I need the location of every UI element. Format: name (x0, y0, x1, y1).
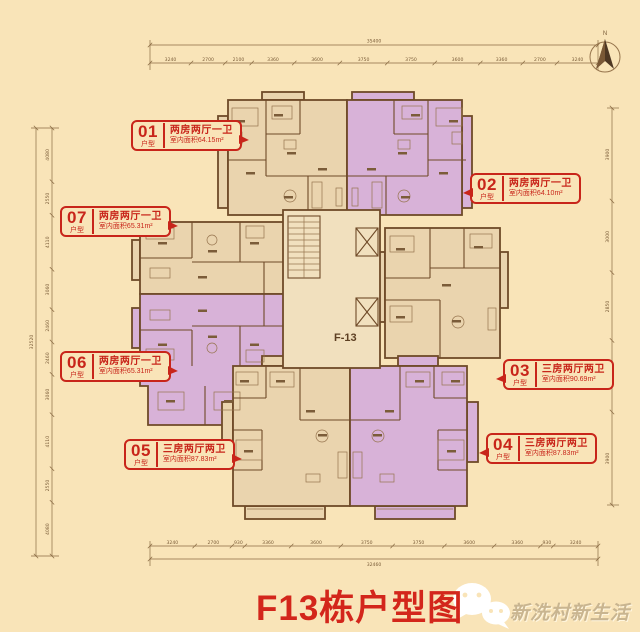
unit-number: 07 (67, 209, 87, 226)
unit-callout-06: 06 户型 两房两厅一卫 室内面积65.31m² (60, 351, 171, 382)
unit-01-plan (218, 92, 347, 215)
dimension-bottom: 3240270093033603600375037503600336093032… (148, 540, 600, 568)
dim-label: 3750 (358, 57, 370, 63)
unit-number-badge: 01 户型 (138, 123, 165, 148)
dim-label: 2700 (202, 57, 214, 63)
unit-03-plan (368, 228, 508, 358)
unit-tag: 户型 (134, 460, 148, 467)
dim-label: 3360 (511, 540, 523, 546)
unit-area: 室内面积65.31m² (99, 223, 162, 232)
dim-label: 3600 (463, 540, 475, 546)
dim-label: 3900 (605, 149, 611, 161)
unit-type: 两房两厅一卫 (99, 356, 162, 369)
unit-area: 室内面积64.15m² (170, 137, 233, 146)
unit-tag: 户型 (513, 380, 527, 387)
dim-label: 3240 (570, 540, 582, 546)
unit-tag: 户型 (496, 454, 510, 461)
unit-number: 01 (138, 123, 158, 140)
unit-number-badge: 03 户型 (510, 362, 537, 387)
dim-label: 930 (542, 540, 551, 546)
unit-number: 04 (493, 436, 513, 453)
unit-tag: 户型 (141, 141, 155, 148)
unit-number-badge: 07 户型 (67, 209, 94, 234)
dim-label: 3060 (45, 389, 51, 401)
unit-number: 03 (510, 362, 530, 379)
north-compass-icon: N (590, 31, 620, 72)
dim-label: 3900 (605, 453, 611, 465)
unit-number: 05 (131, 442, 151, 459)
dim-label: 2100 (233, 57, 245, 63)
core-plan: F-13 (283, 210, 380, 368)
dim-label: 2700 (534, 57, 546, 63)
unit-callout-03: 03 户型 三房两厅两卫 室内面积90.69m² (503, 359, 614, 390)
dimension-right: 39003000285030003900 (605, 106, 619, 507)
floorplan-poster: 3240270021003360360037503750360033602700… (0, 0, 640, 632)
dim-label: 3750 (405, 57, 417, 63)
building-label: F-13 (334, 332, 357, 344)
dim-label: 32460 (367, 562, 382, 568)
dim-label: 2850 (605, 301, 611, 313)
dim-label: 2460 (45, 352, 51, 364)
unit-callout-02: 02 户型 两房两厅一卫 室内面积64.10m² (470, 173, 581, 204)
unit-area: 室内面积87.83m² (525, 450, 588, 459)
unit-number: 02 (477, 176, 497, 193)
unit-type: 三房两厅两卫 (163, 444, 226, 457)
dim-label: 2550 (45, 193, 51, 205)
unit-callout-04: 04 户型 三房两厅两卫 室内面积87.83m² (486, 433, 597, 464)
dim-label: 2550 (45, 480, 51, 492)
unit-type: 三房两厅两卫 (542, 364, 605, 377)
dim-label: 3060 (45, 284, 51, 296)
unit-callout-07: 07 户型 两房两厅一卫 室内面积65.31m² (60, 206, 171, 237)
compass-label: N (603, 31, 607, 37)
dim-label: 32520 (29, 335, 35, 350)
unit-type: 两房两厅一卫 (509, 178, 572, 191)
unit-number-badge: 06 户型 (67, 354, 94, 379)
dimension-left: 4080255041103060246024603060411025504080… (29, 126, 59, 558)
dim-label: 3360 (496, 57, 508, 63)
dim-label: 4080 (45, 149, 51, 161)
unit-type: 三房两厅两卫 (525, 438, 588, 451)
dim-label: 2460 (45, 320, 51, 332)
dim-label: 3600 (452, 57, 464, 63)
unit-callout-05: 05 户型 三房两厅两卫 室内面积87.83m² (124, 439, 235, 470)
unit-number-badge: 05 户型 (131, 442, 158, 467)
page-title: F13栋户型图 (256, 580, 463, 631)
dim-label: 3600 (310, 540, 322, 546)
dim-label: 4110 (45, 236, 51, 248)
dim-label: 930 (234, 540, 243, 546)
unit-area: 室内面积87.83m² (163, 456, 226, 465)
unit-tag: 户型 (70, 227, 84, 234)
unit-number-badge: 04 户型 (493, 436, 520, 461)
unit-type: 两房两厅一卫 (170, 125, 233, 138)
unit-tag: 户型 (70, 372, 84, 379)
wechat-caption: 新洗村新生活 (510, 598, 630, 625)
dim-label: 3240 (572, 57, 584, 63)
dim-label: 3600 (311, 57, 323, 63)
dim-label: 3360 (267, 57, 279, 63)
unit-type: 两房两厅一卫 (99, 211, 162, 224)
dimension-top: 3240270021003360360037503750360033602700… (148, 39, 600, 71)
unit-number: 06 (67, 354, 87, 371)
unit-area: 室内面积64.10m² (509, 190, 572, 199)
unit-tag: 户型 (480, 194, 494, 201)
dim-label: 3750 (413, 540, 425, 546)
dim-label: 35400 (367, 39, 382, 45)
unit-area: 室内面积90.69m² (542, 376, 605, 385)
unit-number-badge: 02 户型 (477, 176, 504, 201)
unit-area: 室内面积65.31m² (99, 368, 162, 377)
unit-callout-01: 01 户型 两房两厅一卫 室内面积64.15m² (131, 120, 242, 151)
dim-label: 3000 (605, 231, 611, 243)
dim-label: 4080 (45, 523, 51, 535)
dim-label: 3240 (165, 57, 177, 63)
dim-label: 3360 (262, 540, 274, 546)
dim-label: 3240 (167, 540, 179, 546)
dim-label: 2700 (207, 540, 219, 546)
dim-label: 4110 (45, 436, 51, 448)
dim-label: 3750 (361, 540, 373, 546)
